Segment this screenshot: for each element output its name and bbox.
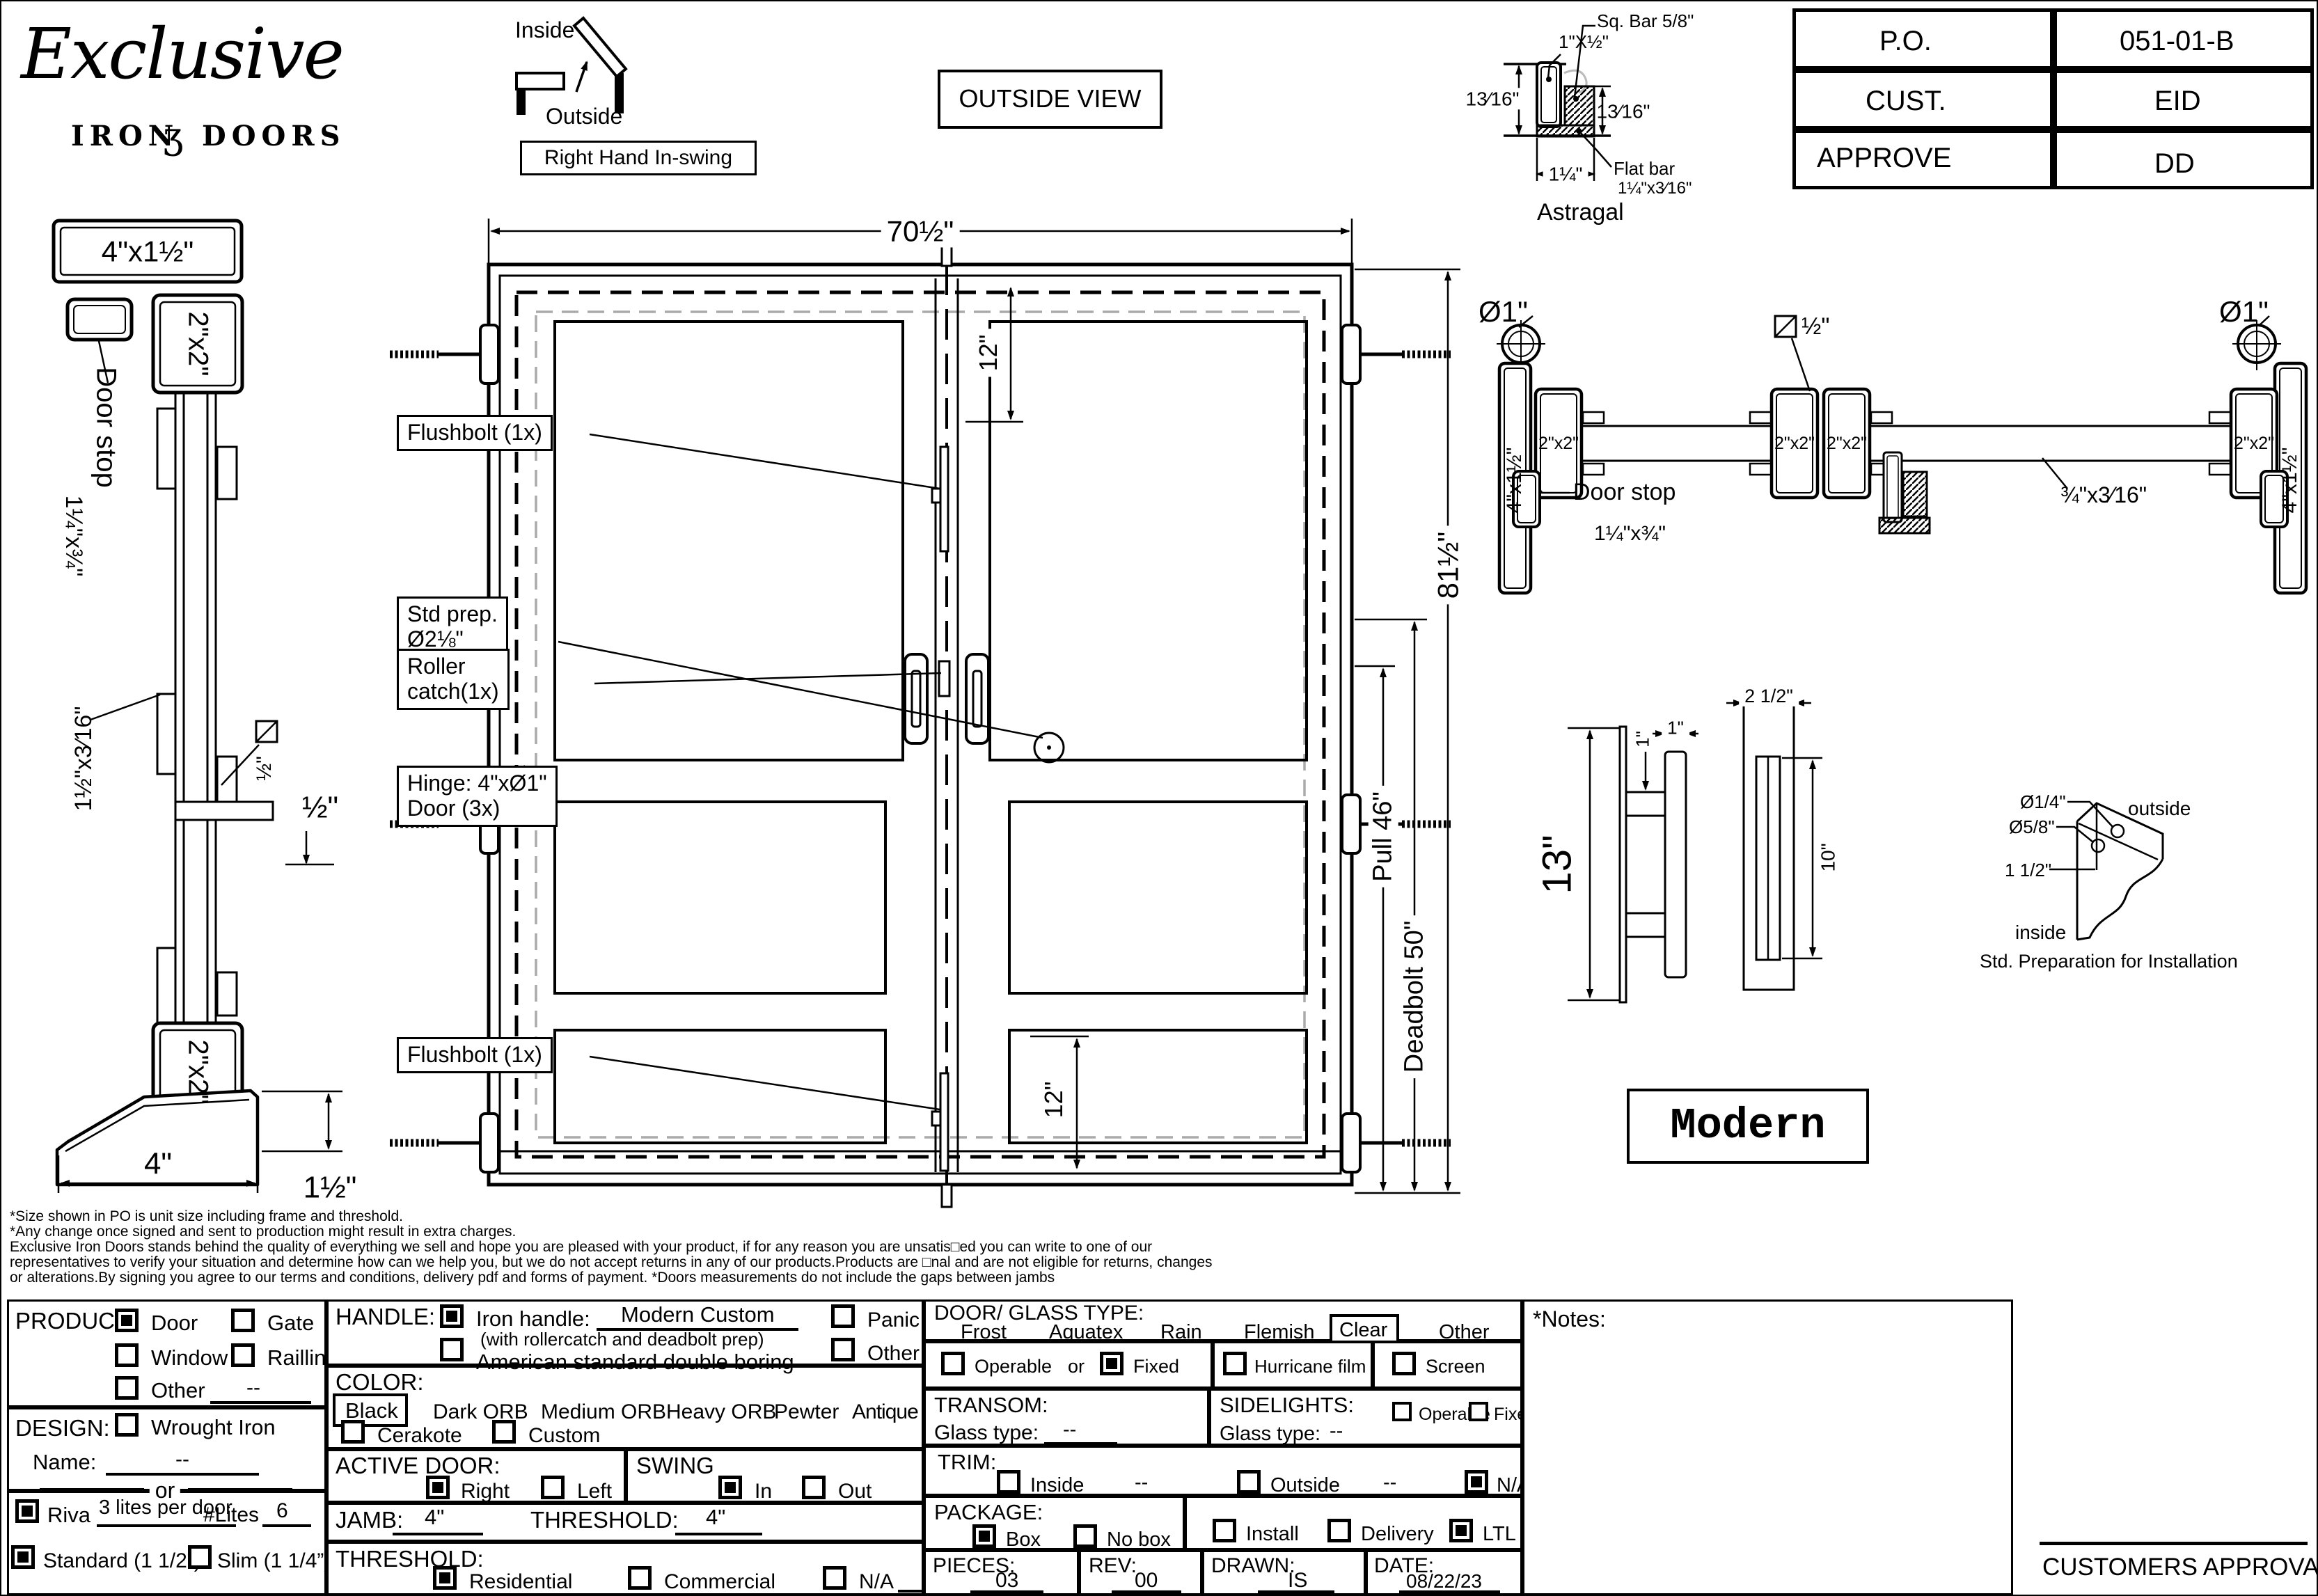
plan-stile2-size: 2"x2"	[1774, 434, 1815, 453]
design-name-value[interactable]: --	[175, 1448, 189, 1471]
design-wrought-label: Wrought Iron	[151, 1416, 276, 1440]
threshold-na-label: N/A	[859, 1570, 894, 1594]
rev-line[interactable]	[1112, 1590, 1181, 1593]
install-outside-label: outside	[2128, 798, 2191, 819]
lites-line[interactable]	[262, 1524, 311, 1527]
hinge-label: Hinge: 4"xØ1" Door (3x)	[397, 766, 558, 827]
trim-inside-line[interactable]	[1098, 1495, 1195, 1498]
lites-value[interactable]: 6	[276, 1499, 288, 1523]
design-name-line[interactable]	[106, 1473, 259, 1476]
approve-value: DD	[2154, 148, 2195, 180]
threshold-residential-checkbox[interactable]	[433, 1566, 457, 1590]
jamb-doorstop-size: 1¼"x¾"	[61, 496, 87, 577]
handle-post-dim: 1"	[1632, 731, 1653, 748]
swing-out-checkbox[interactable]	[802, 1476, 826, 1499]
trim-na-checkbox[interactable]	[1465, 1470, 1488, 1494]
drawn-value[interactable]: IS	[1288, 1569, 1307, 1593]
elevation-top-offset-dim: 12"	[975, 329, 1002, 377]
disclaimer-line5: or alterations.By signing you agree to o…	[10, 1270, 1055, 1286]
sidelights-glass-label: Glass type:	[1220, 1423, 1320, 1445]
color-heavyorb-option[interactable]: Heavy ORB	[666, 1400, 776, 1424]
jamb-flatbar-size: 1½"x3⁄16"	[70, 706, 97, 812]
jamb-line[interactable]	[393, 1533, 483, 1535]
glazing-fixed-checkbox[interactable]	[1100, 1352, 1123, 1375]
view-title: OUTSIDE VIEW	[938, 70, 1162, 129]
elevation-width-dim: 70½"	[881, 214, 960, 247]
jamb-value[interactable]: 4"	[425, 1506, 444, 1530]
threshold-dim-label: THRESHOLD:	[530, 1508, 679, 1533]
color-pewter-option[interactable]: Pewter	[774, 1400, 839, 1424]
astragal-width: 1¼"	[1543, 163, 1588, 184]
package-nobox-label: No box	[1107, 1528, 1171, 1551]
flushbolt-bottom-label: Flushbolt (1x)	[397, 1037, 553, 1073]
plan-tube-right-size: 4"x1½"	[2278, 448, 2302, 514]
package-nobox-checkbox[interactable]	[1073, 1524, 1097, 1548]
active-left-label: Left	[577, 1480, 612, 1503]
cust-value-cell: EID	[2053, 70, 2314, 129]
design-wrought-checkbox[interactable]	[115, 1413, 139, 1437]
standard-checkbox[interactable]	[11, 1545, 35, 1569]
plan-flatbar-size: ¾"x3⁄16"	[2060, 483, 2147, 508]
standard-label: Standard (1 1/2”)	[43, 1549, 201, 1573]
disclaimer-line4: representatives to verify your situation…	[10, 1254, 1213, 1271]
rev-label: REV:	[1089, 1554, 1137, 1578]
shipping-install-label: Install	[1246, 1523, 1299, 1545]
trim-outside-label: Outside	[1270, 1474, 1340, 1496]
handle-american-label: American standard double boring	[476, 1350, 794, 1375]
glazing-operable-label: Operable	[975, 1356, 1052, 1377]
jamb-base-height-dim: 1½"	[303, 1170, 357, 1204]
handle-detail-drawing	[1568, 695, 1822, 1002]
glass-clear-option[interactable]: Clear	[1339, 1319, 1387, 1341]
trim-inside-checkbox[interactable]	[997, 1470, 1020, 1494]
sidelights-glass-line[interactable]	[1314, 1444, 1380, 1446]
threshold-residential-label: Residential	[469, 1570, 572, 1594]
glass-other-option[interactable]: Other	[1439, 1321, 1490, 1343]
handle-plate-width-dim: 2 1/2"	[1739, 686, 1799, 706]
threshold-label: THRESHOLD:	[336, 1547, 484, 1572]
swing-label: SWING	[636, 1453, 714, 1479]
cust-label-cell: CUST.	[1792, 70, 2053, 129]
deadbolt-height-dim: Deadbolt 50"	[1400, 915, 1430, 1078]
pull-height-dim: Pull 46"	[1369, 786, 1398, 887]
or-line-left	[40, 1488, 144, 1492]
handle-iron-note: (with rollercatch and deadbolt prep)	[480, 1329, 764, 1350]
color-cerakote-checkbox[interactable]	[341, 1420, 365, 1444]
approve-label: APPROVE	[1817, 143, 1951, 174]
shipping-ltl-label: LTL	[1483, 1523, 1516, 1545]
notes-section[interactable]	[1522, 1299, 2013, 1595]
riva-checkbox[interactable]	[15, 1499, 39, 1523]
color-custom-checkbox[interactable]	[492, 1420, 516, 1444]
or-line-right	[188, 1488, 292, 1492]
flushbolt-top-label: Flushbolt (1x)	[397, 415, 553, 451]
logo-ornament-icon: ʒ	[163, 116, 183, 157]
install-caption: Std. Preparation for Installation	[1980, 951, 2238, 972]
screen-label: Screen	[1426, 1356, 1485, 1377]
approve-label-cell: APPROVE	[1792, 129, 2053, 189]
shipping-ltl-checkbox[interactable]	[1449, 1519, 1473, 1542]
plan-section-drawing	[1497, 316, 2306, 593]
glass-rain-option[interactable]: Rain	[1160, 1321, 1202, 1343]
swing-type-label: Right Hand In-swing	[520, 141, 757, 175]
design-label: DESIGN:	[15, 1416, 110, 1441]
slim-label: Slim (1 1/4”)	[217, 1549, 331, 1573]
plan-hinge-dia-left: Ø1"	[1479, 295, 1528, 328]
package-box-label: Box	[1006, 1528, 1041, 1551]
swing-inside-label: Inside	[515, 18, 574, 43]
roller-line2: catch(1x)	[407, 679, 499, 704]
glazing-fixed-label: Fixed	[1133, 1356, 1179, 1377]
swing-in-checkbox[interactable]	[718, 1476, 742, 1499]
drawn-line[interactable]	[1258, 1590, 1334, 1593]
install-dia1: Ø1/4"	[2020, 792, 2066, 812]
handle-iron-label: Iron handle:	[476, 1307, 590, 1332]
shipping-delivery-checkbox[interactable]	[1327, 1519, 1351, 1542]
plan-hinge-dia-right: Ø1"	[2219, 295, 2269, 328]
disclaimer-line2: *Any change once signed and sent to prod…	[10, 1224, 516, 1240]
active-right-checkbox[interactable]	[426, 1476, 450, 1499]
transom-glass-line[interactable]	[1044, 1442, 1117, 1445]
riva-label: Riva	[47, 1503, 90, 1528]
package-label: PACKAGE:	[934, 1501, 1043, 1525]
product-other-label: Other	[151, 1379, 205, 1403]
plan-stile3-size: 2"x2"	[1827, 434, 1867, 453]
active-right-label: Right	[461, 1480, 510, 1503]
handle-grip-height-dim: 10"	[1817, 843, 1838, 871]
handle-iron-value[interactable]: Modern Custom	[621, 1303, 775, 1327]
glazing-or-label: or	[1068, 1356, 1085, 1377]
trim-outside-checkbox[interactable]	[1237, 1470, 1261, 1494]
product-window-label: Window	[151, 1346, 228, 1370]
threshold-dim-line[interactable]	[675, 1533, 762, 1535]
elevation-bottom-offset-dim: 12"	[1040, 1076, 1068, 1124]
date-value[interactable]: 08/22/23	[1406, 1570, 1482, 1592]
jamb-doorstop-label: Door stop	[90, 367, 122, 487]
handle-iron-checkbox[interactable]	[440, 1304, 464, 1328]
glass-aquatex-option[interactable]: Aquatex	[1049, 1321, 1123, 1343]
astragal-caption: Astragal	[1537, 199, 1624, 226]
handle-american-checkbox[interactable]	[440, 1338, 464, 1361]
roller-line1: Roller	[407, 654, 499, 679]
po-value-cell: 051-01-B	[2053, 8, 2314, 70]
plan-doorstop-size: 1¼"x¾"	[1594, 522, 1666, 546]
plan-tube-left-size: 4"x1½"	[1503, 448, 1527, 514]
transom-glass-label: Glass type:	[934, 1421, 1039, 1445]
astragal-height-left: 13⁄16"	[1460, 88, 1525, 109]
plan-sqbar-size: ½"	[1801, 313, 1829, 340]
design-name-label: Name:	[33, 1451, 96, 1475]
sidelights-glass-value[interactable]: --	[1330, 1420, 1343, 1442]
hinge-line2: Door (3x)	[407, 796, 547, 821]
color-mediumorb-option[interactable]: Medium ORB	[541, 1400, 666, 1424]
color-custom-label: Custom	[528, 1424, 600, 1448]
plan-doorstop-label: Door stop	[1573, 479, 1676, 505]
shipping-install-checkbox[interactable]	[1213, 1519, 1236, 1542]
hinge-line1: Hinge: 4"xØ1"	[407, 771, 547, 796]
shipping-delivery-label: Delivery	[1361, 1523, 1434, 1545]
active-left-checkbox[interactable]	[541, 1476, 565, 1499]
swing-outside-label: Outside	[546, 104, 622, 129]
trim-label: TRIM:	[938, 1451, 996, 1475]
po-label-cell: P.O.	[1792, 8, 2053, 70]
jamb-label: JAMB:	[336, 1508, 403, 1533]
style-name-label: Modern	[1627, 1089, 1869, 1164]
std-prep-line1: Std prep.	[407, 602, 498, 627]
handle-other-checkbox[interactable]	[831, 1338, 855, 1361]
disclaimer-line3: Exclusive Iron Doors stands behind the q…	[10, 1239, 1152, 1256]
approval-label: CUSTOMERS APPROVAL	[2042, 1554, 2318, 1581]
handle-grip-width-dim: 1"	[1662, 718, 1689, 738]
install-detail-drawing	[2049, 802, 2163, 940]
product-door-label: Door	[151, 1311, 198, 1336]
product-other-value[interactable]: --	[246, 1376, 260, 1400]
trim-outside-line[interactable]	[1357, 1495, 1455, 1498]
hurricane-checkbox[interactable]	[1223, 1352, 1247, 1375]
sidelights-operable-checkbox[interactable]	[1392, 1402, 1412, 1421]
handle-height-dim: 13"	[1536, 829, 1581, 899]
plan-stile1-size: 2"x2"	[1538, 434, 1579, 453]
plan-stile4-size: 2"x2"	[2234, 434, 2274, 453]
astragal-tube-label: 1"X½"	[1559, 32, 1609, 52]
roller-catch-label: Roller catch(1x)	[397, 649, 510, 710]
cust-label: CUST.	[1866, 86, 1946, 117]
jamb-tube-size: 4"x1½"	[102, 235, 194, 267]
jamb-sqbar-size: ½"	[253, 756, 276, 781]
package-box-checkbox[interactable]	[972, 1524, 996, 1548]
handle-panic-checkbox[interactable]	[831, 1304, 855, 1328]
glazing-operable-checkbox[interactable]	[941, 1352, 965, 1375]
elevation-height-dim: 81½"	[1431, 526, 1464, 605]
po-label: P.O.	[1879, 26, 1932, 57]
product-door-checkbox[interactable]	[115, 1309, 139, 1332]
pieces-value[interactable]: 03	[995, 1569, 1018, 1593]
transom-glass-value[interactable]: --	[1063, 1419, 1076, 1441]
order-drawing-sheet: Exclusive IRON ʒ DOORS Inside Outside Ri…	[0, 0, 2318, 1596]
install-inside-label: inside	[2015, 922, 2066, 943]
install-dia2: Ø5/8"	[2009, 817, 2055, 837]
color-label: COLOR:	[336, 1370, 424, 1396]
handle-other-label: Other	[867, 1342, 920, 1366]
active-door-label: ACTIVE DOOR:	[336, 1453, 500, 1479]
product-other-line[interactable]	[210, 1401, 311, 1404]
hurricane-label: Hurricane film	[1254, 1357, 1366, 1377]
glass-flemish-option[interactable]: Flemish	[1244, 1321, 1315, 1343]
trim-outside-value[interactable]: --	[1383, 1471, 1396, 1494]
slim-checkbox[interactable]	[188, 1545, 212, 1569]
transom-label: TRANSOM:	[934, 1393, 1048, 1418]
product-gate-checkbox[interactable]	[231, 1309, 255, 1332]
product-window-checkbox[interactable]	[115, 1343, 139, 1367]
lites-label: #Lites	[203, 1503, 259, 1527]
jamb-base-width-dim: 4"	[139, 1146, 178, 1180]
signature-line[interactable]	[2040, 1542, 2308, 1545]
product-railling-checkbox[interactable]	[231, 1343, 255, 1367]
product-gate-label: Gate	[267, 1311, 314, 1336]
date-line[interactable]	[1399, 1590, 1500, 1593]
trim-inside-label: Inside	[1030, 1474, 1084, 1496]
astragal-height-right: 13⁄16"	[1597, 100, 1650, 122]
threshold-dim-value[interactable]: 4"	[706, 1506, 725, 1530]
threshold-na-checkbox[interactable]	[823, 1566, 846, 1590]
astragal-flatbar-label: Flat bar	[1614, 159, 1675, 179]
approve-value-cell: DD	[2053, 129, 2314, 189]
swing-in-label: In	[755, 1480, 772, 1503]
notes-label: *Notes:	[1533, 1307, 1606, 1332]
astragal-flatbar-size: 1¼"x3⁄16"	[1618, 180, 1692, 198]
disclaimer-line1: *Size shown in PO is unit size including…	[10, 1208, 403, 1225]
jamb-frame-bottom-size: 2"x2"	[182, 1040, 214, 1105]
jamb-gap-dim: ½"	[302, 790, 338, 824]
swing-out-label: Out	[838, 1480, 872, 1503]
handle-label: HANDLE:	[336, 1304, 435, 1330]
glass-frost-option[interactable]: Frost	[961, 1321, 1007, 1343]
logo-word-doors: DOORS	[202, 121, 346, 152]
pieces-line[interactable]	[970, 1590, 1043, 1593]
install-offset: 1 1/2"	[2005, 860, 2051, 880]
drawn-label: DRAWN:	[1211, 1554, 1295, 1578]
threshold-commercial-checkbox[interactable]	[628, 1566, 652, 1590]
screen-checkbox[interactable]	[1392, 1352, 1416, 1375]
color-cerakote-label: Cerakote	[377, 1424, 462, 1448]
product-other-checkbox[interactable]	[115, 1376, 139, 1400]
threshold-na-line[interactable]	[898, 1590, 922, 1593]
threshold-commercial-label: Commercial	[664, 1570, 775, 1594]
jamb-frame-top-size: 2"x2"	[182, 312, 214, 377]
cust-value: EID	[2154, 86, 2201, 117]
sidelights-label: SIDELIGHTS:	[1220, 1393, 1354, 1418]
trim-inside-value[interactable]: --	[1135, 1471, 1148, 1494]
astragal-sqbar-label: Sq. Bar 5/8"	[1597, 11, 1694, 31]
rev-value[interactable]: 00	[1135, 1569, 1158, 1593]
logo-script: Exclusive	[21, 15, 343, 93]
po-value: 051-01-B	[2120, 26, 2234, 57]
sidelights-fixed-checkbox[interactable]	[1469, 1402, 1488, 1421]
